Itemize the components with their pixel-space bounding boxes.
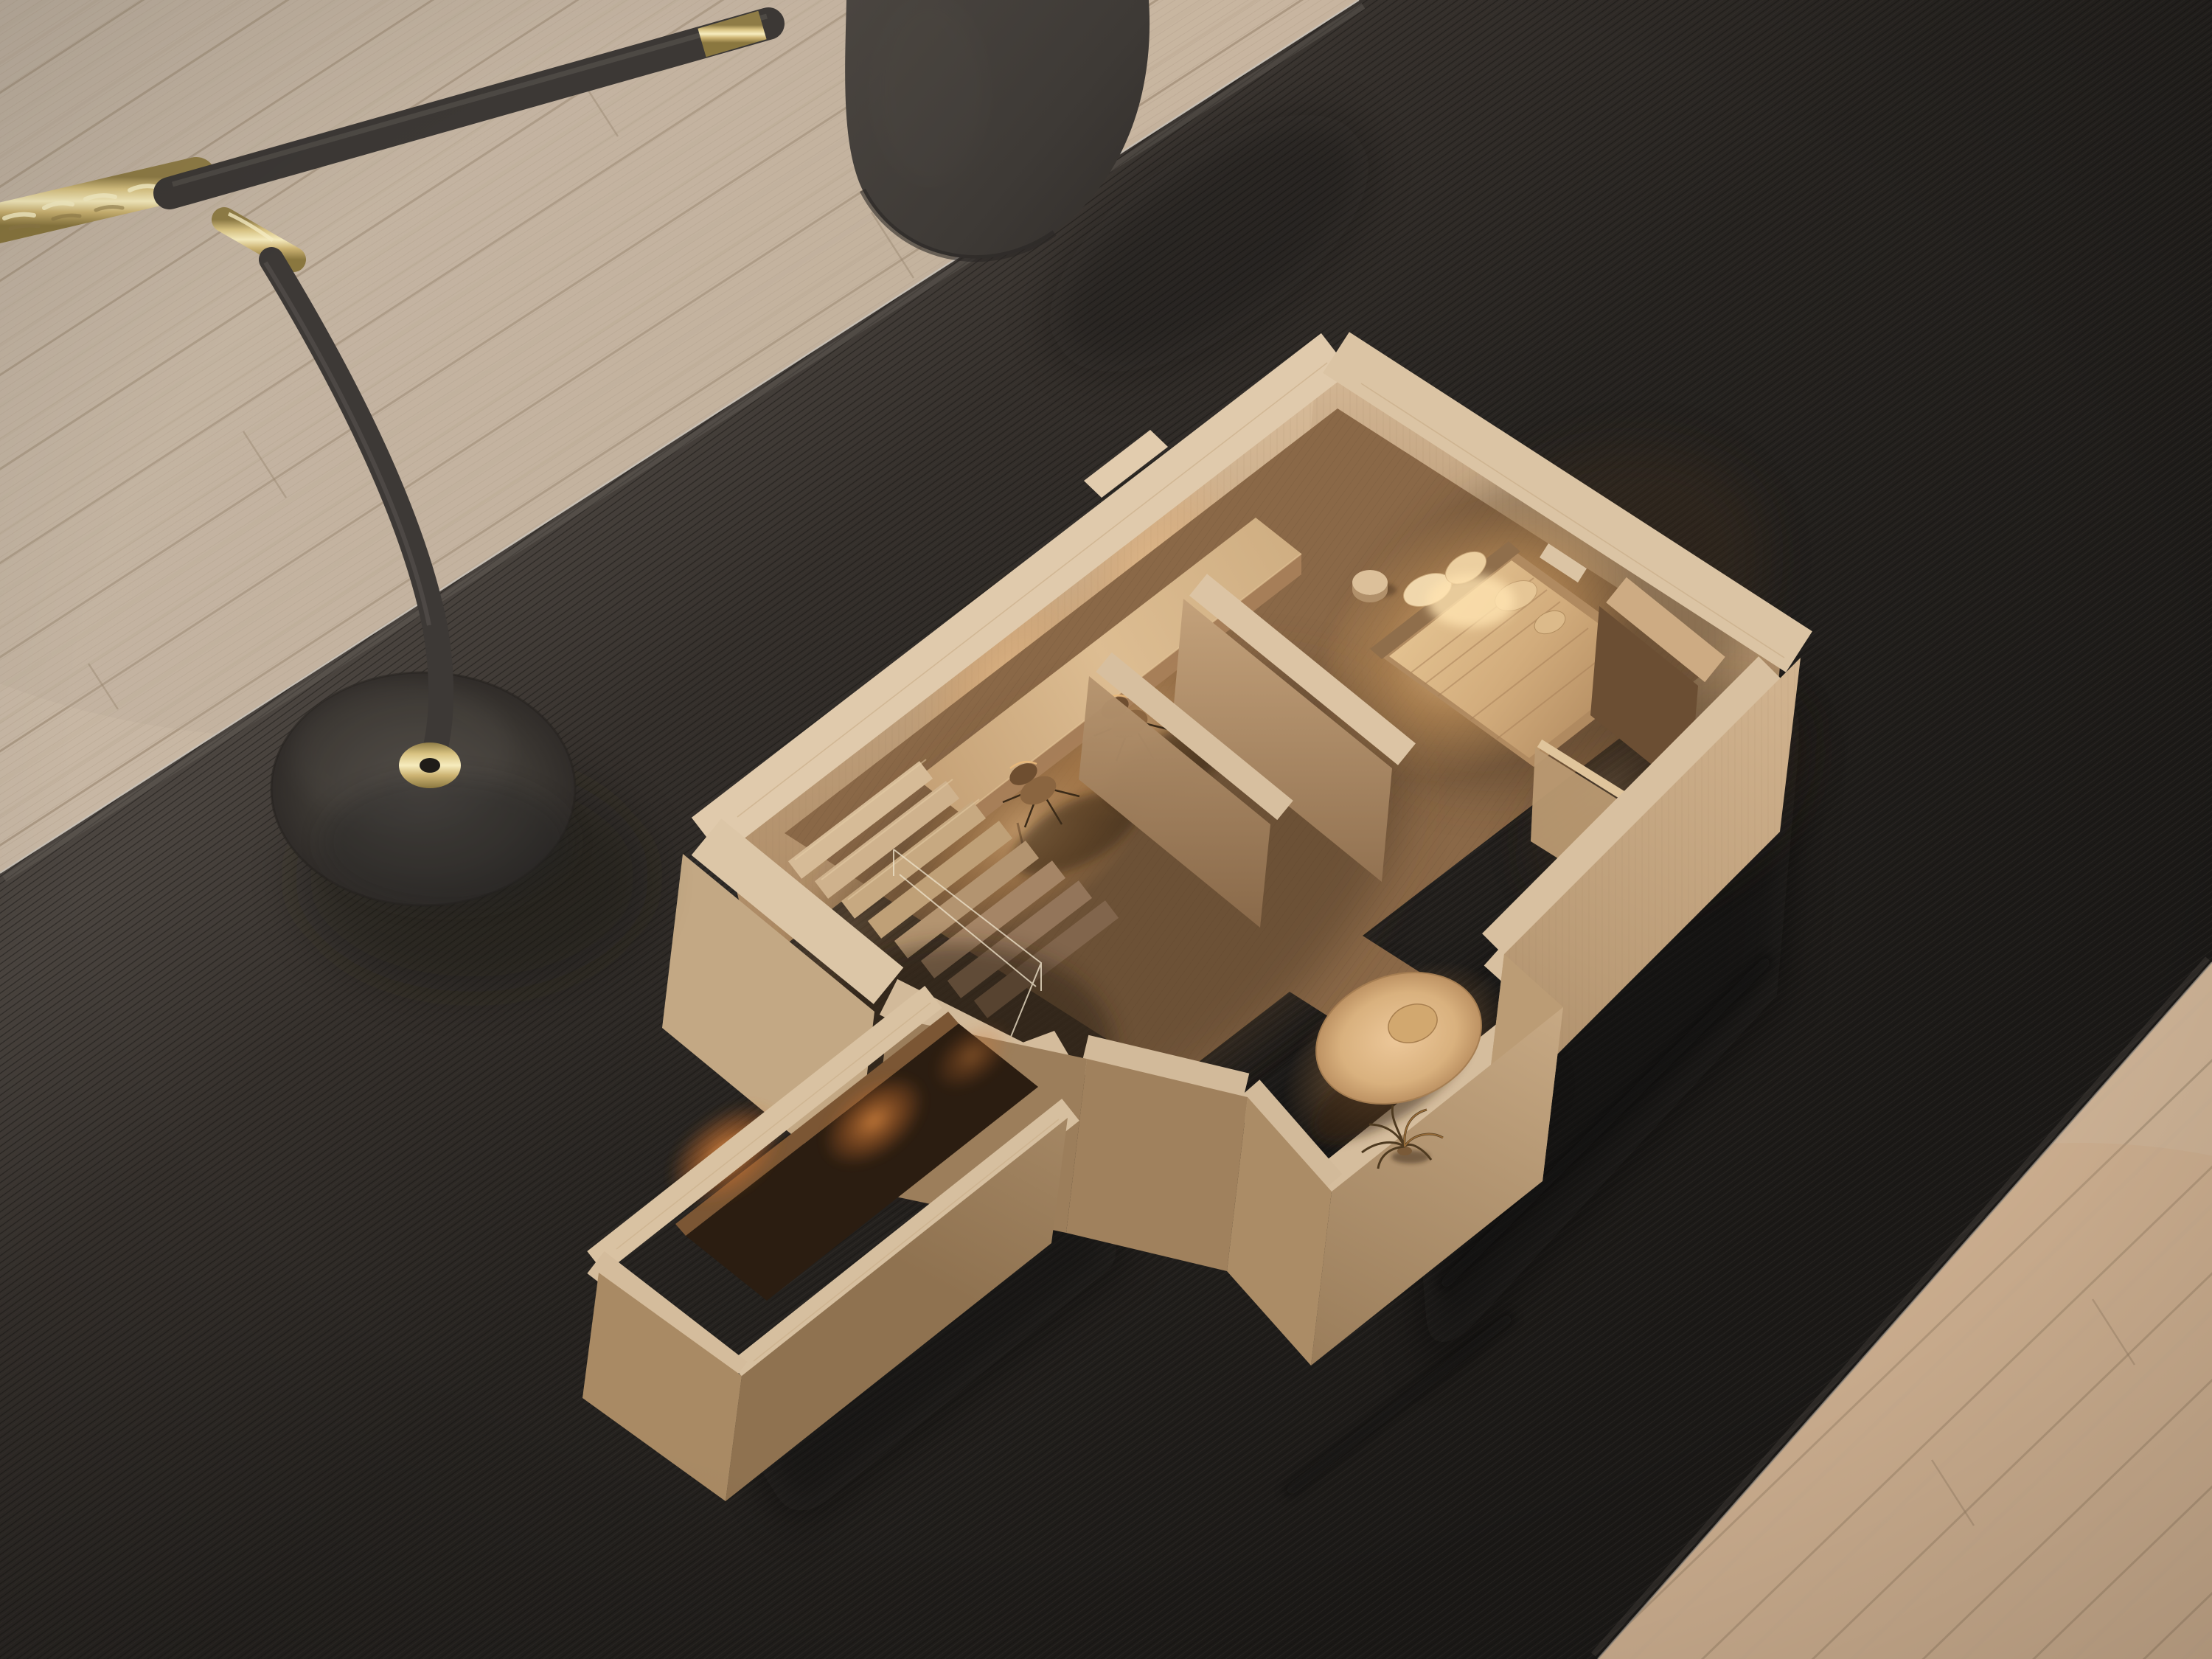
scene-render <box>0 0 2212 1659</box>
vignette <box>0 0 2212 1659</box>
render-canvas <box>0 0 2212 1659</box>
